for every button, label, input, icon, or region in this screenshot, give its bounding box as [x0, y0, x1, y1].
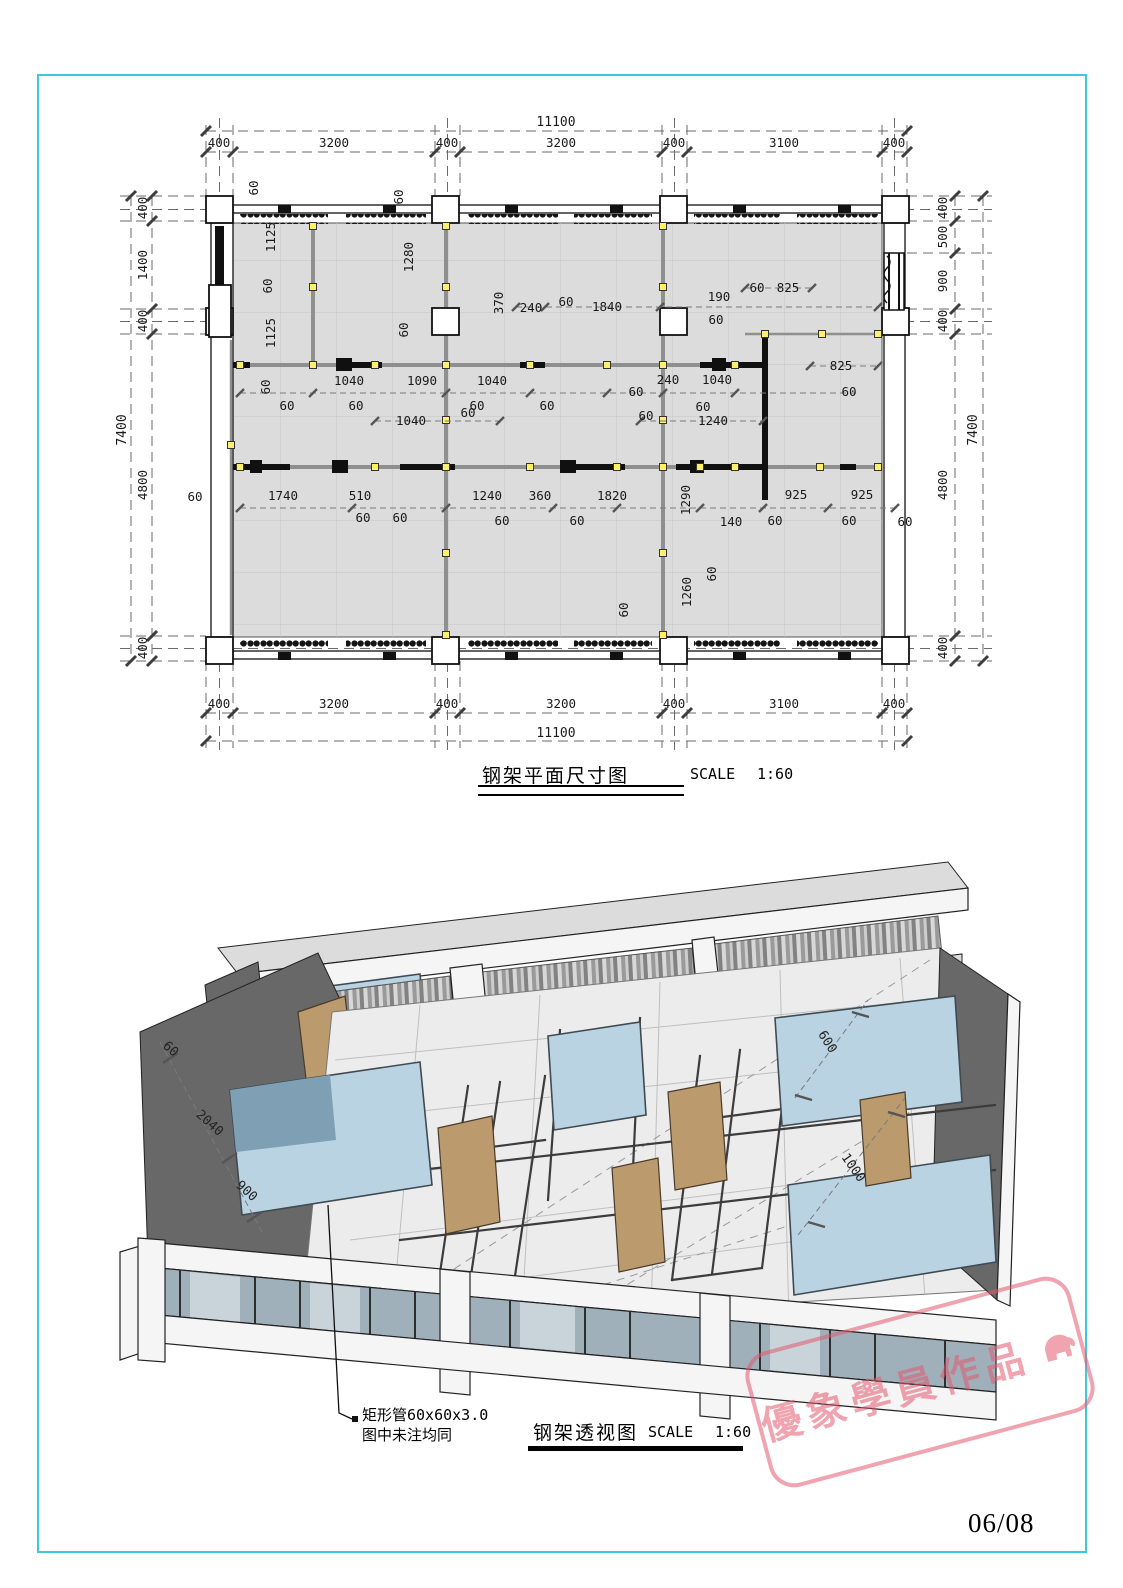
dim-label: 1400 [135, 250, 150, 280]
dim-label: 400 [135, 310, 150, 333]
dim-label: 400 [135, 637, 150, 660]
dim-label: 60 [355, 510, 370, 525]
dim-label: 1260 [679, 577, 694, 607]
dim-label: 240 [657, 372, 680, 387]
dim-label: 900 [935, 270, 950, 293]
dim-label: 925 [851, 487, 874, 502]
dim-label: 1240 [472, 488, 502, 503]
dim-label: 360 [529, 488, 552, 503]
dim-label: 1240 [698, 413, 728, 428]
dim-label: 60 [279, 398, 294, 413]
dim-label: 925 [785, 487, 808, 502]
dim-label: 60 [348, 398, 363, 413]
annotation-line-1: 矩形管60x60x3.0 [362, 1406, 488, 1426]
dim-label: 1125 [263, 222, 278, 252]
dim-label: 1040 [396, 413, 426, 428]
dim-label: 60 [897, 514, 912, 529]
right-wall-window [884, 253, 904, 310]
dim-label: 60 [841, 513, 856, 528]
annotation-line-2: 图中未注均同 [362, 1426, 488, 1446]
perspective-title-underline [528, 1446, 743, 1451]
dim-label: 370 [491, 292, 506, 315]
front-column [700, 1293, 730, 1419]
dim-label: 7400 [966, 414, 981, 445]
door-panel [860, 1092, 911, 1186]
dim-label: 1740 [268, 488, 298, 503]
plan-bottom-wall [233, 651, 882, 659]
dim-label: 60 [246, 180, 261, 195]
plan-scale-label: SCALE [690, 765, 735, 783]
dim-label: 4800 [935, 470, 950, 500]
dim-label: 60 [258, 379, 273, 394]
perspective-title: 钢架透视图 [533, 1418, 638, 1445]
dim-label: 400 [436, 135, 459, 150]
dim-label: 60 [695, 399, 710, 414]
dim-label: 1040 [702, 372, 732, 387]
dim-label: 400 [935, 310, 950, 333]
dim-label: 60 [494, 513, 509, 528]
dim-label: 3200 [546, 696, 576, 711]
dim-label: 3200 [319, 696, 349, 711]
dim-label: 1040 [334, 373, 364, 388]
glass-partition [548, 1022, 646, 1130]
dim-label: 60 [841, 384, 856, 399]
dim-label: 400 [935, 197, 950, 220]
dim-label: 60 [708, 312, 723, 327]
dim-label: 60 [628, 384, 643, 399]
dim-label: 60 [396, 322, 411, 337]
floor-plan-drawing: 11100 400 3200 400 3200 400 3100 400 400… [115, 115, 992, 750]
dim-label: 3200 [546, 135, 576, 150]
dim-label: 60 [767, 513, 782, 528]
dim-label: 3100 [769, 135, 799, 150]
dim-label: 400 [208, 135, 231, 150]
dim-label: 400 [436, 696, 459, 711]
dim-label: 400 [663, 135, 686, 150]
dim-label: 1090 [407, 373, 437, 388]
dim-label: 1820 [597, 488, 627, 503]
dim-label: 60 [539, 398, 554, 413]
dim-label: 500 [935, 226, 950, 249]
dim-label: 7400 [115, 414, 130, 445]
dim-label: 60 [569, 513, 584, 528]
door-panel [668, 1082, 727, 1190]
plan-title-underline [478, 785, 684, 796]
dim-label: 510 [349, 488, 372, 503]
dim-label: 190 [708, 289, 731, 304]
dim-label: 60 [616, 602, 631, 617]
dim-label: 60 [260, 278, 275, 293]
dim-label: 400 [208, 696, 231, 711]
dim-label: 60 [460, 405, 475, 420]
front-column [440, 1269, 470, 1395]
dim-label: 3200 [319, 135, 349, 150]
dim-label: 1290 [678, 485, 693, 515]
plan-scale-value: 1:60 [757, 765, 793, 783]
dim-label: 1125 [263, 318, 278, 348]
dim-label: 60 [704, 566, 719, 581]
dim-label: 400 [883, 135, 906, 150]
dim-label: 825 [830, 358, 853, 373]
dim-label: 60 [749, 280, 764, 295]
pipe-annotation: 矩形管60x60x3.0 图中未注均同 [362, 1406, 488, 1445]
perspective-scale-label: SCALE [648, 1423, 693, 1441]
dim-label: 400 [663, 696, 686, 711]
dim-label: 11100 [536, 726, 575, 741]
dim-label: 140 [720, 514, 743, 529]
dim-label: 400 [883, 696, 906, 711]
dim-label: 400 [135, 197, 150, 220]
page-number: 06/08 [968, 1508, 1035, 1539]
dim-label: 60 [638, 408, 653, 423]
dim-label: 240 [520, 300, 543, 315]
dim-label: 60 [558, 294, 573, 309]
dim-label: 1280 [401, 242, 416, 272]
dim-label: 60 [391, 189, 406, 204]
door-panel [438, 1116, 500, 1234]
dim-label: 1040 [477, 373, 507, 388]
dim-label: 825 [777, 280, 800, 295]
perspective-scale-value: 1:60 [715, 1423, 751, 1441]
front-left-column [138, 1238, 165, 1362]
dim-label: 4800 [135, 470, 150, 500]
dim-label: 11100 [536, 115, 575, 130]
elephant-icon [1033, 1314, 1085, 1375]
dim-label: 400 [935, 637, 950, 660]
door-panel [612, 1158, 665, 1272]
dim-label: 60 [187, 489, 202, 504]
drawing-sheet: 11100 400 3200 400 3200 400 3100 400 400… [0, 0, 1123, 1588]
plan-title: 钢架平面尺寸图 [482, 761, 629, 788]
dim-label: 60 [392, 510, 407, 525]
watermark-text: 優象學員作品 [754, 1325, 1036, 1452]
dim-label: 1840 [592, 299, 622, 314]
plan-top-wall [233, 205, 882, 213]
dim-label: 3100 [769, 696, 799, 711]
